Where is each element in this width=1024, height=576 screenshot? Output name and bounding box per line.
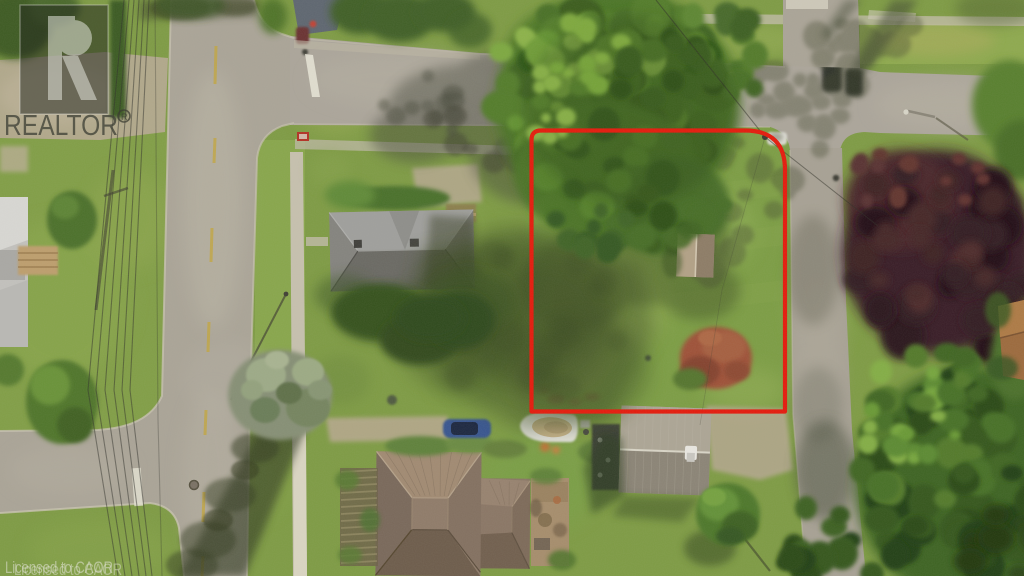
svg-text:R: R: [121, 112, 128, 122]
svg-text:Licensed to CAOR: Licensed to CAOR: [14, 560, 122, 576]
svg-text:REALTOR: REALTOR: [4, 110, 118, 142]
